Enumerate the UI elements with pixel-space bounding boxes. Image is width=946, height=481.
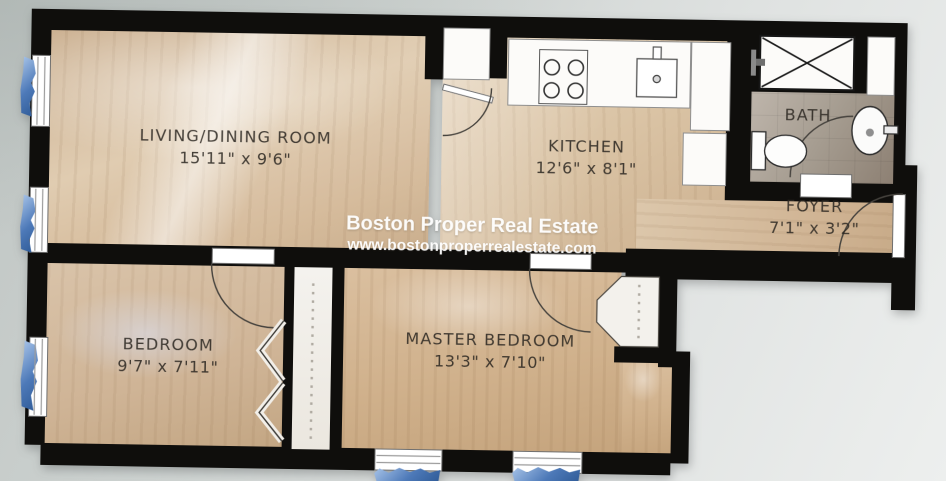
kitchen-sink: [636, 47, 677, 98]
room-dims: 9'7" x 7'11": [117, 355, 219, 379]
room-label-bedroom: BEDROOM 9'7" x 7'11": [117, 333, 219, 379]
bath-sink: [852, 106, 899, 155]
room-label-foyer: FOYER 7'1" x 3'2": [769, 195, 860, 240]
room-dims: 13'3" x 7'10": [405, 350, 575, 375]
room-name: KITCHEN: [536, 135, 638, 159]
door-arc-kitchen: [443, 88, 492, 137]
room-name: LIVING/DINING ROOM: [139, 124, 331, 149]
room-dims: 12'6" x 8'1": [535, 157, 637, 181]
watermark: Boston Proper Real Estate www.bostonprop…: [346, 212, 599, 259]
bifold-doors: [259, 321, 284, 441]
room-label-living-dining: LIVING/DINING ROOM 15'11" x 9'6": [139, 124, 332, 171]
room-label-bath: BATH: [785, 104, 832, 127]
room-label-master-bedroom: MASTER BEDROOM 13'3" x 7'10": [405, 328, 576, 375]
floor-plan-image: LIVING/DINING ROOM 15'11" x 9'6" KITCHEN…: [0, 0, 946, 481]
room-dims: 7'1" x 3'2": [769, 217, 860, 240]
room-dims: 15'11" x 9'6": [139, 146, 331, 171]
room-name: MASTER BEDROOM: [405, 328, 575, 353]
window-mullions: [31, 57, 587, 466]
watermark-url: www.bostonproperrealestate.com: [346, 235, 599, 259]
room-name: BATH: [785, 104, 832, 127]
shower-head: [751, 50, 765, 76]
room-label-kitchen: KITCHEN 12'6" x 8'1": [535, 135, 637, 181]
floor-plan: LIVING/DINING ROOM 15'11" x 9'6" KITCHEN…: [22, 1, 922, 481]
door-arc-bedroom: [211, 264, 275, 328]
stove-burners: [544, 60, 584, 99]
shower-x: [762, 38, 853, 88]
master-closet: [596, 276, 659, 347]
toilet: [751, 132, 807, 171]
room-name: FOYER: [769, 195, 860, 218]
door-arc-master: [529, 269, 592, 332]
room-name: BEDROOM: [117, 333, 219, 357]
